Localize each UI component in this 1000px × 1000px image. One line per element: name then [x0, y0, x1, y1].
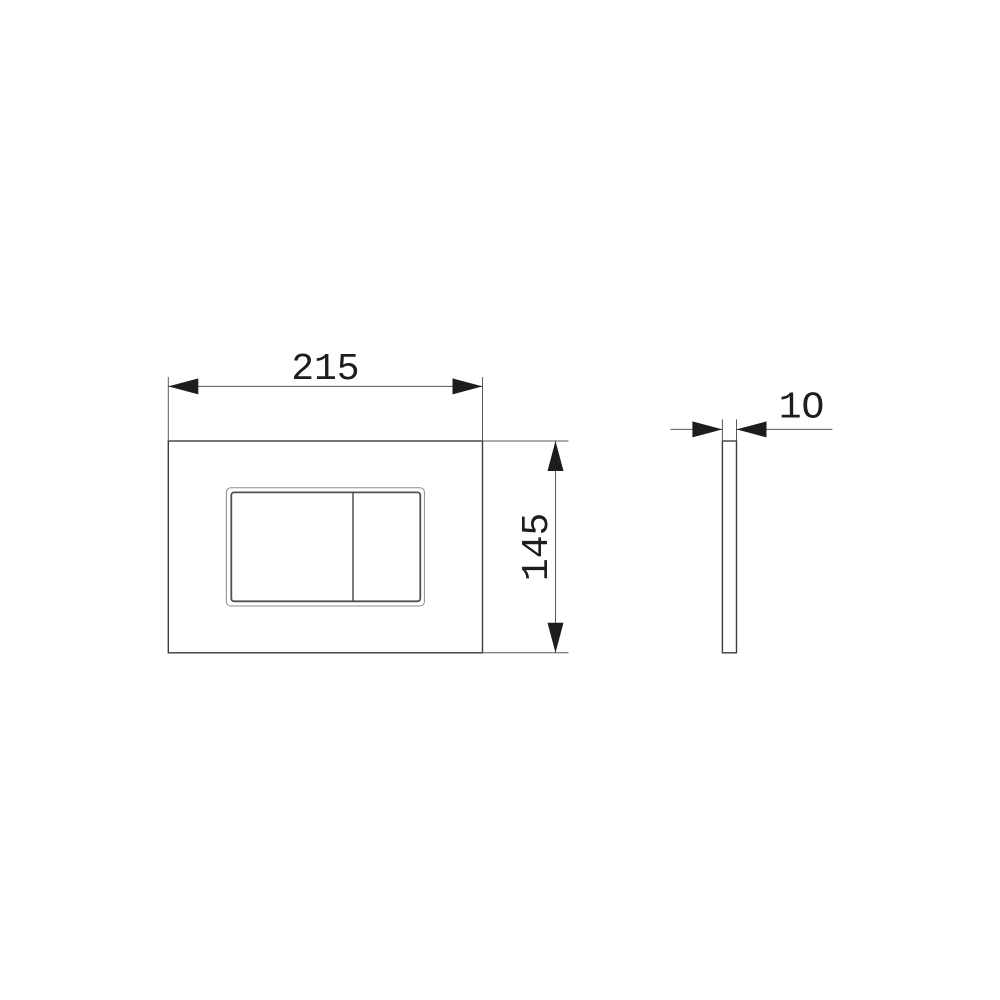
svg-text:1O: 1O — [779, 387, 825, 430]
svg-text:145: 145 — [516, 513, 559, 581]
svg-text:215: 215 — [291, 348, 359, 391]
